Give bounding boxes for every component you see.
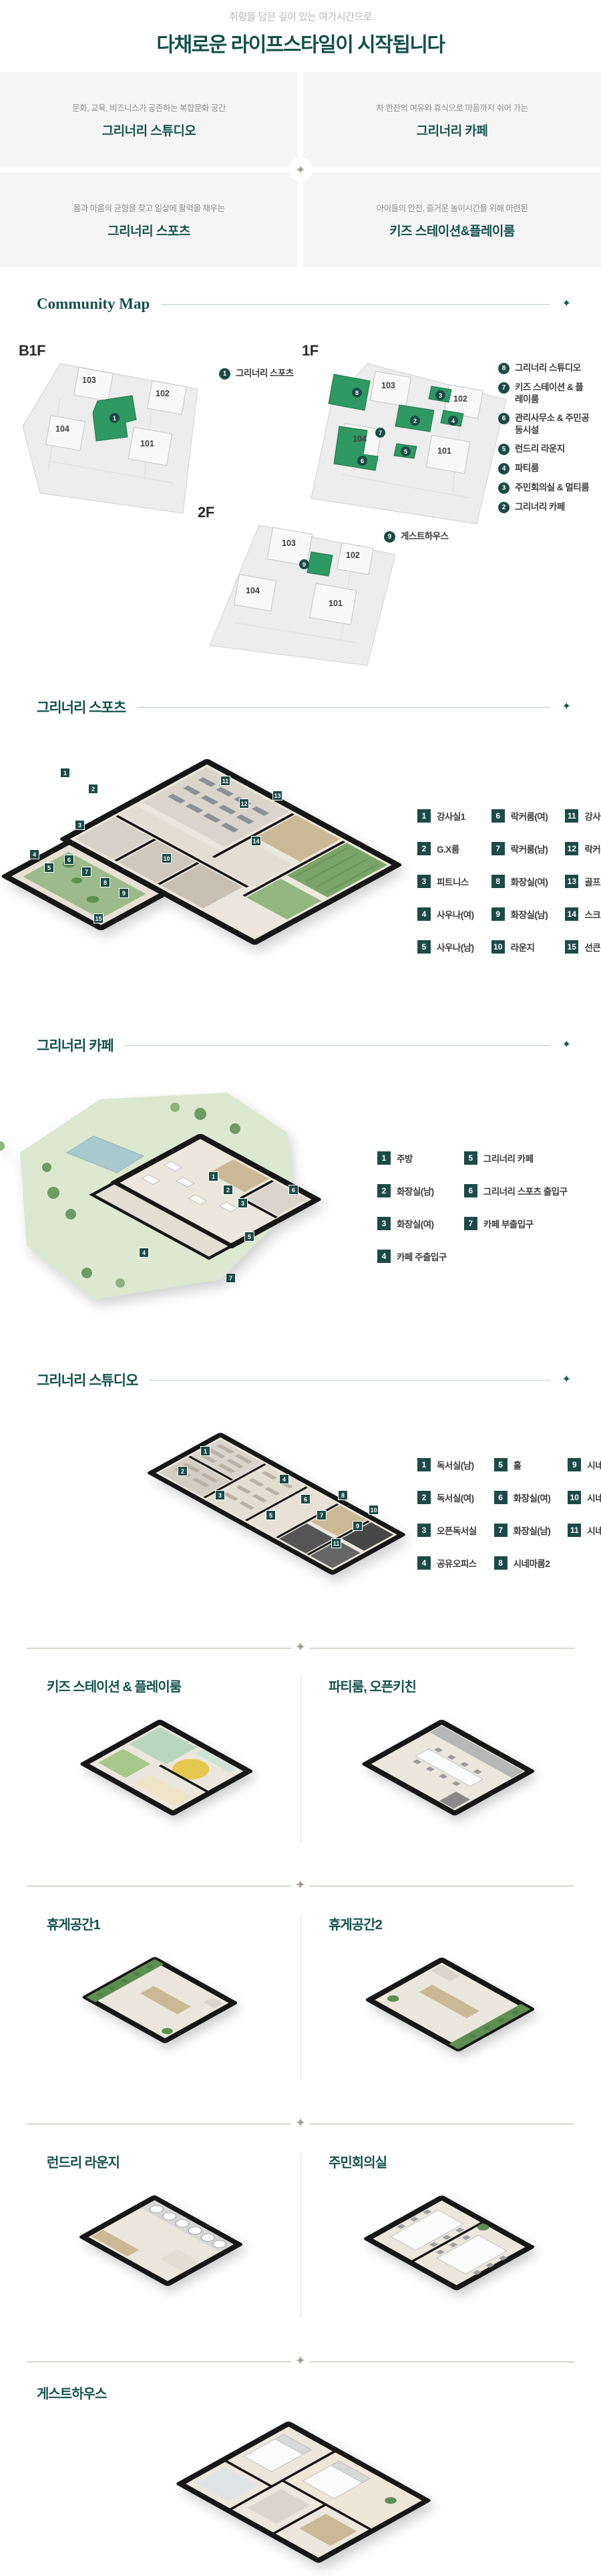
floor-label-1f: 1F (302, 342, 509, 360)
legend-number: 4 (417, 907, 431, 921)
plan-marker: 6 (288, 1185, 298, 1195)
map-marker: 2 (410, 416, 420, 426)
laundry-title: 런드리 라운지 (47, 2152, 300, 2171)
feature-desc: 차 한잔의 여유와 휴식으로 마음까지 쉬어 가는 (377, 101, 528, 114)
plan-marker: 5 (266, 1510, 276, 1520)
legend-column: 6락커룸(여) 7락커룸(남) 8화장실(여) 9화장실(남) 10라운지 (491, 809, 548, 1015)
divider-line (138, 707, 550, 708)
legend-label: 그리너리 스튜디오 (515, 362, 581, 374)
legend-item: 11시네마룸3 (568, 1524, 601, 1537)
studio-title: 그리너리 스튜디오 (37, 1370, 138, 1390)
plan-marker: 11 (220, 776, 230, 786)
legend-item: 2화장실(남) (377, 1184, 447, 1197)
plan-marker: 4 (139, 1248, 149, 1258)
divider-line (150, 1380, 550, 1381)
legend-label: 주민회의실 & 멀티룸 (515, 482, 589, 494)
plan-marker: 9 (119, 888, 129, 898)
legend-number: 6 (464, 1184, 477, 1197)
building-label: 103 (82, 376, 96, 385)
legend-item: 9 게스트하우스 (384, 531, 491, 543)
building-label: 104 (55, 424, 69, 434)
legend-item: 4카페 주출입구 (377, 1250, 447, 1263)
community-maps: B1F 103 102 104 101 1 (0, 323, 601, 688)
legend-item: 3화장실(여) (377, 1217, 447, 1230)
plan-marker: 2 (178, 1466, 188, 1476)
section-divider: ✦ (27, 1879, 574, 1892)
legend-label: 스크린골프 (584, 907, 601, 921)
legend-number: 2 (417, 1491, 431, 1504)
rest1-cell: 휴게공간1 (0, 1912, 300, 2084)
map-marker: 4 (448, 416, 458, 426)
plan-marker: 15 (93, 913, 104, 923)
legend-label: 사우나(남) (437, 940, 474, 954)
plan-marker: 9 (353, 1521, 363, 1531)
plan-marker: 8 (100, 877, 110, 887)
legend-number: 2 (377, 1184, 391, 1197)
legend-label: 게스트하우스 (401, 531, 449, 543)
hero-subtitle: 취향을 담은 깊이 있는 여가시간으로 (0, 9, 601, 23)
guesthouse-title: 게스트하우스 (37, 2383, 601, 2402)
legend-item: 1독서실(남) (417, 1458, 477, 1471)
kids-title: 키즈 스테이션 & 플레이룸 (47, 1676, 300, 1695)
divider-line (162, 304, 550, 305)
kids-floorplan-image (47, 1707, 270, 1846)
duo-kids-party: 키즈 스테이션 & 플레이룸 파티룸, 오픈키친 (0, 1675, 601, 1846)
legend-number: 4 (498, 463, 510, 474)
legend-number: 1 (417, 809, 431, 823)
section-divider: ✦ (27, 2355, 574, 2368)
legend-item: 6화장실(여) (494, 1491, 551, 1504)
cafe-floorplan-image (0, 1072, 374, 1340)
feature-title: 그리너리 카페 (417, 121, 488, 139)
legend-number: 3 (498, 482, 510, 494)
legend-label: 그리너리 스포츠 출입구 (483, 1184, 568, 1197)
legend-item: 2 그리너리 카페 (498, 501, 601, 513)
legend-label: 락커룸(여) (511, 809, 548, 823)
legend-item: 4사우나(여) (417, 907, 474, 921)
legend-column: 1독서실(남) 2독서실(여) 3오픈독서실 4공유오피스 (417, 1458, 477, 1608)
plan-marker: 3 (215, 1490, 225, 1500)
page-title: 다채로운 라이프스타일이 시작됩니다 (0, 28, 601, 57)
legend-number: 3 (377, 1217, 391, 1230)
cafe-header: 그리너리 카페 ✦ (37, 1035, 571, 1055)
legend-label: 락커룸 (584, 842, 601, 855)
plan-marker: 3 (238, 1198, 248, 1208)
b1f-map: 103 102 104 101 1 (19, 361, 206, 518)
community-map-header: Community Map ✦ (37, 295, 571, 313)
legend-item: 11강사실2 (565, 809, 601, 823)
legend-label: 라운지 (511, 940, 535, 954)
guesthouse-header: 게스트하우스 (37, 2383, 601, 2402)
legend-number: 5 (417, 940, 431, 954)
guesthouse-floorplan (114, 2412, 487, 2572)
feature-title: 키즈 스테이션&플레이룸 (389, 221, 515, 239)
legend-number: 8 (494, 1556, 508, 1570)
legend-label: 시네마룸3 (587, 1524, 601, 1537)
sparkle-icon: ✦ (291, 2117, 310, 2130)
plan-marker: 6 (64, 855, 74, 865)
map-marker: 3 (435, 390, 445, 400)
f1-map-image (302, 361, 509, 528)
feature-card-kids: 아이들의 안전, 즐거운 놀이시간을 위해 마련된 키즈 스테이션&플레이룸 (303, 172, 601, 267)
page: 취향을 담은 깊이 있는 여가시간으로 다채로운 라이프스타일이 시작됩니다 문… (0, 0, 601, 2576)
sparkle-icon: ✦ (562, 702, 571, 712)
plan-marker: 7 (317, 1510, 327, 1520)
plan-marker: 5 (44, 863, 54, 873)
legend-label: 그리너리 카페 (515, 501, 565, 513)
cafe-floorplan: 1 2 3 4 5 6 7 (0, 1072, 377, 1350)
legend-item: 8화장실(여) (491, 875, 548, 888)
legend-column: 1주방 2화장실(남) 3화장실(여) 4카페 주출입구 (377, 1151, 447, 1350)
plan-marker: 4 (279, 1474, 289, 1484)
legend-item: 6 관리사무소 & 주민공동시설 (498, 412, 601, 436)
legend-number: 13 (565, 875, 578, 888)
legend-item: 6락커룸(여) (491, 809, 548, 823)
cafe-section: 1 2 3 4 5 6 7 1주방 2화장실(남) 3화장실(여) 4카페 주출… (0, 1072, 601, 1350)
sports-section: 1 2 3 4 5 6 7 8 9 10 11 12 13 14 15 1강사실… (0, 734, 601, 1015)
legend-number: 10 (491, 940, 505, 954)
legend-item: 7락커룸(남) (491, 842, 548, 855)
legend-number: 7 (494, 1524, 508, 1537)
legend-label: 키즈 스테이션 & 플레이룸 (515, 382, 588, 405)
legend-number: 4 (377, 1250, 391, 1263)
legend-number: 1 (219, 368, 230, 380)
legend-item: 1주방 (377, 1151, 447, 1165)
plan-marker: 1 (200, 1446, 210, 1456)
studio-floorplan: 1 2 3 4 5 6 7 8 9 10 11 (0, 1407, 417, 1608)
legend-label: 그리너리 스포츠 (236, 368, 294, 380)
party-floorplan (329, 1707, 601, 1846)
b1f-map-image (19, 361, 206, 518)
laundry-floorplan-image (47, 2183, 260, 2319)
legend-item: 5홀 (494, 1458, 551, 1471)
legend-label: 화장실(남) (514, 1524, 551, 1537)
legend-number: 9 (491, 907, 505, 921)
plan-marker: 11 (331, 1538, 341, 1548)
legend-number: 5 (464, 1151, 477, 1165)
plan-marker: 3 (75, 820, 85, 830)
meeting-floorplan (329, 2183, 601, 2321)
legend-item: 8 그리너리 스튜디오 (498, 362, 601, 374)
legend-item: 5그리너리 카페 (464, 1151, 568, 1165)
legend-item: 14스크린골프 (565, 907, 601, 921)
legend-label: G.X룸 (437, 842, 459, 855)
legend-number: 2 (417, 842, 431, 855)
guesthouse-floorplan-image (114, 2412, 474, 2572)
legend-label: 시네마룸2 (514, 1556, 550, 1570)
feature-desc: 아이들의 안전, 즐거운 놀이시간을 위해 마련된 (377, 201, 528, 214)
map-marker: 5 (401, 446, 411, 456)
legend-number: 8 (491, 875, 505, 888)
legend-number: 7 (498, 382, 510, 394)
rest2-title: 휴게공간2 (329, 1914, 601, 1933)
legend-label: 락커룸(남) (511, 842, 548, 855)
plan-marker: 7 (226, 1273, 236, 1283)
party-title: 파티룸, 오픈키친 (329, 1676, 601, 1695)
sparkle-icon: ✦ (562, 299, 571, 309)
legend-label: 선큰 (584, 940, 600, 954)
legend-label: 오픈독서실 (437, 1524, 477, 1537)
floor-map-2f: 2F 103 102 104 101 9 (198, 504, 398, 670)
rest1-title: 휴게공간1 (47, 1914, 300, 1933)
legend-label: 강사실2 (584, 809, 601, 823)
f2-map-image (198, 523, 398, 670)
legend-label: 카페 주출입구 (397, 1250, 447, 1263)
building-label: 104 (246, 586, 260, 595)
legend-number: 6 (494, 1491, 508, 1504)
legend-label: 화장실(남) (511, 907, 548, 921)
map-marker: 8 (352, 388, 362, 398)
legend-label: 화장실(남) (397, 1184, 434, 1197)
studio-floorplan-image (0, 1418, 414, 1592)
sparkle-icon: ✦ (291, 1879, 310, 1892)
legend-column: 5홀 6화장실(여) 7화장실(남) 8시네마룸2 (494, 1458, 551, 1608)
legend-item: 7카페 부출입구 (464, 1217, 568, 1230)
legend-label: 골프연습장 (584, 875, 601, 888)
legend-label: 그리너리 카페 (483, 1151, 534, 1165)
legend-item: 2독서실(여) (417, 1491, 477, 1504)
laundry-cell: 런드리 라운지 (0, 2150, 300, 2321)
building-label: 102 (346, 551, 360, 560)
legend-number: 5 (498, 444, 510, 455)
rest2-floorplan (329, 1945, 601, 2084)
legend-number: 9 (384, 531, 395, 543)
f1-map: 103 102 104 101 8 7 6 5 4 3 2 (302, 361, 509, 528)
plan-marker: 5 (244, 1232, 254, 1242)
legend-number: 11 (565, 809, 578, 823)
floor-label-2f: 2F (198, 504, 398, 521)
legend-item: 2G.X룸 (417, 842, 474, 855)
hero: 취향을 담은 깊이 있는 여가시간으로 다채로운 라이프스타일이 시작됩니다 (0, 0, 601, 57)
legend-label: 강사실1 (437, 809, 465, 823)
legend-item: 3 주민회의실 & 멀티룸 (498, 482, 601, 494)
legend-label: 독서실(여) (437, 1491, 474, 1504)
legend-number: 7 (464, 1217, 477, 1230)
floor-map-1f: 1F (302, 342, 509, 528)
section-divider: ✦ (27, 2117, 574, 2130)
plan-marker: 13 (272, 791, 282, 801)
legend-label: 화장실(여) (511, 875, 548, 888)
plan-marker: 2 (223, 1185, 233, 1195)
legend-column: 1강사실1 2G.X룸 3피트니스 4사우나(여) 5사우나(남) (417, 809, 474, 1015)
meeting-title: 주민회의실 (329, 2152, 601, 2171)
plan-marker: 12 (239, 799, 249, 809)
feature-desc: 문화, 교육, 비즈니스가 공존하는 복합문화 공간 (72, 101, 226, 114)
plan-marker: 6 (300, 1494, 311, 1504)
floor-map-b1f: B1F 103 102 104 101 1 (19, 342, 206, 518)
legend-number: 7 (491, 842, 505, 855)
meeting-floorplan-image (329, 2183, 552, 2321)
building-label: 104 (353, 434, 367, 444)
sparkle-icon: ✦ (562, 1040, 571, 1050)
plan-marker: 1 (208, 1171, 218, 1181)
plan-marker: 4 (29, 849, 39, 859)
legend-number: 10 (568, 1491, 581, 1504)
cafe-legend: 1주방 2화장실(남) 3화장실(여) 4카페 주출입구 5그리너리 카페 6그… (377, 1151, 567, 1350)
feature-cards: 문화, 교육, 비즈니스가 공존하는 복합문화 공간 그리너리 스튜디오 차 한… (0, 72, 601, 267)
divider-line (126, 1045, 550, 1046)
legend-item: 8시네마룸2 (494, 1556, 551, 1570)
community-map-title: Community Map (37, 295, 150, 313)
f2-legend: 9 게스트하우스 (384, 531, 491, 543)
sports-floorplan: 1 2 3 4 5 6 7 8 9 10 11 12 13 14 15 (0, 734, 417, 1015)
legend-column: 9시네마라운지 10시네마룸1 11시네마룸3 (568, 1458, 601, 1608)
feature-card-cafe: 차 한잔의 여유와 휴식으로 마음까지 쉬어 가는 그리너리 카페 (303, 72, 601, 167)
legend-item: 9화장실(남) (491, 907, 548, 921)
legend-label: 주방 (397, 1151, 413, 1165)
building-label: 102 (453, 394, 467, 404)
building-label: 101 (140, 439, 154, 448)
building-label: 103 (282, 539, 296, 548)
plan-marker: 8 (338, 1490, 348, 1500)
building-label: 101 (437, 446, 451, 456)
feature-card-studio: 문화, 교육, 비즈니스가 공존하는 복합문화 공간 그리너리 스튜디오 (0, 72, 298, 167)
rest2-cell: 휴게공간2 (300, 1912, 601, 2084)
duo-rest: 휴게공간1 휴게공간2 (0, 1912, 601, 2084)
legend-item: 7화장실(남) (494, 1524, 551, 1537)
map-marker: 1 (110, 413, 120, 423)
map-marker: 6 (357, 456, 367, 466)
building-label: 102 (156, 389, 170, 398)
legend-number: 2 (498, 502, 510, 513)
building-label: 103 (381, 381, 395, 390)
legend-label: 런드리 라운지 (515, 443, 565, 455)
legend-number: 14 (565, 907, 578, 921)
rest2-floorplan-image (329, 1945, 552, 2084)
legend-item: 12락커룸 (565, 842, 601, 855)
building-label: 101 (329, 599, 343, 608)
legend-number: 9 (568, 1458, 581, 1471)
floor-label-b1f: B1F (19, 342, 206, 360)
legend-number: 3 (417, 1524, 431, 1537)
legend-label: 관리사무소 & 주민공동시설 (515, 412, 592, 436)
legend-label: 카페 부출입구 (483, 1217, 534, 1230)
legend-label: 화장실(여) (397, 1217, 434, 1230)
sports-title: 그리너리 스포츠 (37, 697, 126, 717)
legend-item: 3오픈독서실 (417, 1524, 477, 1537)
kids-cell: 키즈 스테이션 & 플레이룸 (0, 1675, 300, 1846)
studio-legend: 1독서실(남) 2독서실(여) 3오픈독서실 4공유오피스 5홀 6화장실(여)… (417, 1458, 601, 1608)
feature-title: 그리너리 스포츠 (108, 221, 190, 239)
legend-item: 9시네마라운지 (568, 1458, 601, 1471)
plan-marker: 2 (88, 784, 98, 794)
legend-item: 1강사실1 (417, 809, 474, 823)
section-divider: ✦ (27, 1641, 574, 1655)
legend-label: 화장실(여) (514, 1491, 551, 1504)
legend-item: 3피트니스 (417, 875, 474, 888)
meeting-cell: 주민회의실 (300, 2150, 601, 2321)
legend-label: 사우나(여) (437, 907, 474, 921)
legend-number: 12 (565, 842, 578, 855)
map-marker: 7 (375, 428, 385, 438)
kids-floorplan (47, 1707, 300, 1846)
legend-label: 홀 (514, 1458, 522, 1471)
feature-card-sports: 몸과 마음의 균형을 찾고 일상에 활력을 채우는 그리너리 스포츠 (0, 172, 298, 267)
f1-legend: 8 그리너리 스튜디오 7 키즈 스테이션 & 플레이룸 6 관리사무소 & 주… (498, 362, 601, 513)
f2-map: 103 102 104 101 9 (198, 523, 398, 670)
legend-label: 시네마라운지 (587, 1458, 601, 1471)
legend-item: 7 키즈 스테이션 & 플레이룸 (498, 382, 601, 405)
plan-marker: 1 (60, 768, 70, 778)
studio-header: 그리너리 스튜디오 ✦ (37, 1370, 571, 1390)
sparkle-icon: ✦ (288, 158, 313, 182)
legend-number: 5 (494, 1458, 508, 1471)
legend-number: 11 (568, 1524, 581, 1537)
legend-item: 6그리너리 스포츠 출입구 (464, 1184, 568, 1197)
duo-laundry-meeting: 런드리 라운지 주민회의실 (0, 2150, 601, 2321)
legend-item: 13골프연습장 (565, 875, 601, 888)
legend-item: 5 런드리 라운지 (498, 443, 601, 455)
legend-number: 15 (565, 940, 578, 954)
sports-floorplan-image (0, 754, 414, 962)
feature-title: 그리너리 스튜디오 (102, 121, 196, 139)
sparkle-icon: ✦ (562, 1375, 571, 1385)
studio-section: 1 2 3 4 5 6 7 8 9 10 11 1독서실(남) 2독서실(여) … (0, 1407, 601, 1608)
map-marker: 9 (299, 559, 309, 569)
legend-label: 독서실(남) (437, 1458, 474, 1471)
legend-item: 10라운지 (491, 940, 548, 954)
cafe-title: 그리너리 카페 (37, 1035, 114, 1055)
legend-number: 1 (417, 1458, 431, 1471)
plan-marker: 10 (369, 1505, 379, 1515)
legend-number: 6 (491, 809, 505, 823)
legend-item: 15선큰 (565, 940, 601, 954)
sports-header: 그리너리 스포츠 ✦ (37, 697, 571, 717)
feature-desc: 몸과 마음의 균형을 찾고 일상에 활력을 채우는 (73, 201, 225, 214)
legend-label: 파티룸 (515, 462, 539, 474)
rest1-floorplan (53, 1945, 300, 2077)
sports-legend: 1강사실1 2G.X룸 3피트니스 4사우나(여) 5사우나(남) 6락커룸(여… (417, 809, 601, 1015)
sparkle-icon: ✦ (291, 2355, 310, 2368)
legend-item: 4공유오피스 (417, 1556, 477, 1570)
legend-number: 6 (498, 413, 510, 424)
legend-label: 피트니스 (437, 875, 469, 888)
legend-number: 8 (498, 363, 510, 374)
legend-label: 공유오피스 (437, 1556, 477, 1570)
sparkle-icon: ✦ (291, 1641, 310, 1654)
party-cell: 파티룸, 오픈키친 (300, 1675, 601, 1846)
plan-marker: 14 (251, 836, 261, 846)
legend-column: 11강사실2 12락커룸 13골프연습장 14스크린골프 15선큰 (565, 809, 601, 1015)
rest1-floorplan-image (53, 1945, 254, 2077)
legend-number: 4 (417, 1556, 431, 1570)
laundry-floorplan (47, 2183, 300, 2319)
legend-item: 5사우나(남) (417, 940, 474, 954)
legend-item: 10시네마룸1 (568, 1491, 601, 1504)
plan-marker: 10 (162, 853, 172, 863)
plan-marker: 7 (81, 867, 91, 877)
legend-number: 1 (377, 1151, 391, 1165)
party-floorplan-image (329, 1707, 552, 1846)
legend-item: 4 파티룸 (498, 462, 601, 474)
legend-label: 시네마룸1 (587, 1491, 601, 1504)
legend-number: 3 (417, 875, 431, 888)
legend-column: 5그리너리 카페 6그리너리 스포츠 출입구 7카페 부출입구 (464, 1151, 568, 1350)
